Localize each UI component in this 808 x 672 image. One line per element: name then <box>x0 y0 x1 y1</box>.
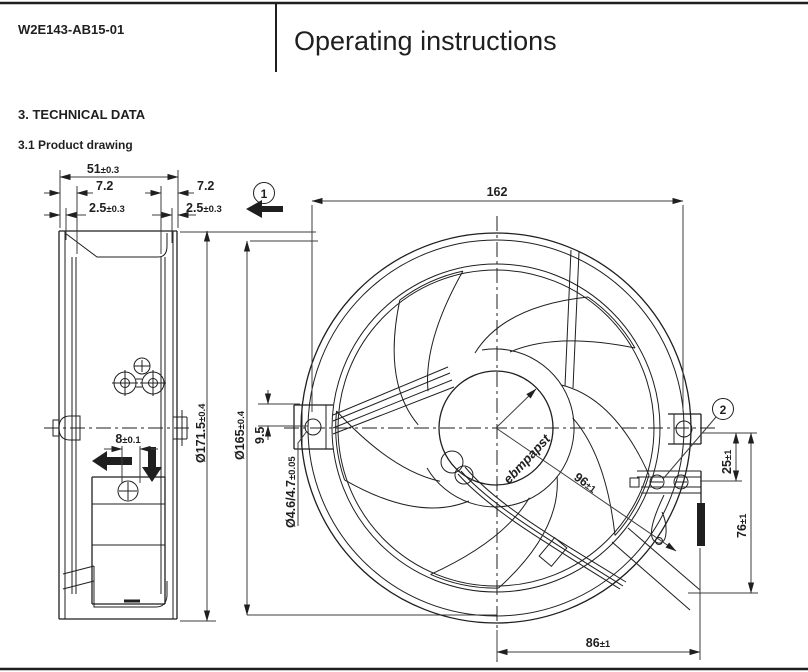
right-mount-bracket <box>668 414 701 444</box>
dim-terminal-top: 25±1 <box>720 449 734 474</box>
section-heading: 3. TECHNICAL DATA <box>18 107 146 122</box>
dim-bracket-offset: 9.5 <box>253 427 267 444</box>
page-frame <box>0 3 808 669</box>
view-direction-arrow-icon <box>246 200 283 218</box>
terminal-assembly <box>612 471 705 610</box>
dim-lip-right: 2.5±0.3 <box>186 201 222 215</box>
fan-side-view <box>44 231 192 619</box>
balloon-1-number: 1 <box>261 187 268 201</box>
dim-terminal-height: 76±1 <box>735 513 749 538</box>
balloon-2-number: 2 <box>720 403 727 417</box>
section-subheading: 3.1 Product drawing <box>18 138 133 152</box>
mount-hole <box>305 419 321 435</box>
dim-flange-left: 7.2 <box>96 179 113 193</box>
motor-box <box>92 477 165 604</box>
dim-cable-offset: 8±0.1 <box>115 432 141 446</box>
dim-outer-diameter: Ø171.5±0.4 <box>194 403 208 463</box>
fan-front-view <box>284 216 716 662</box>
impeller-blades <box>307 255 664 615</box>
left-mount-bracket <box>294 405 333 449</box>
dim-depth: 51±0.3 <box>87 162 119 176</box>
terminal-screws-icon <box>112 358 166 396</box>
product-drawing-canvas: W2E143-AB15-01 Operating instructions 3.… <box>0 0 808 672</box>
airflow-arrow-icon <box>92 451 132 471</box>
dim-hole-diameter: Ø4.6/4.7±0.05 <box>284 456 298 528</box>
dim-terminal-width: 86±1 <box>586 636 611 650</box>
dim-mount-diameter: Ø165±0.4 <box>233 410 247 460</box>
dim-hub-diameter: 96±1 <box>571 470 600 496</box>
operating-instructions-page: W2E143-AB15-01 Operating instructions 3.… <box>0 0 808 672</box>
doc-number: W2E143-AB15-01 <box>18 22 124 37</box>
support-strut <box>565 250 571 386</box>
dim-width: 162 <box>487 185 508 199</box>
dim-flange-right: 7.2 <box>197 179 214 193</box>
wire-strut <box>333 367 454 434</box>
page-title: Operating instructions <box>294 26 557 56</box>
dim-lip-left: 2.5±0.3 <box>89 201 125 215</box>
brand-logo: ebmpapst <box>500 431 553 487</box>
section-cut-fill <box>697 503 705 546</box>
